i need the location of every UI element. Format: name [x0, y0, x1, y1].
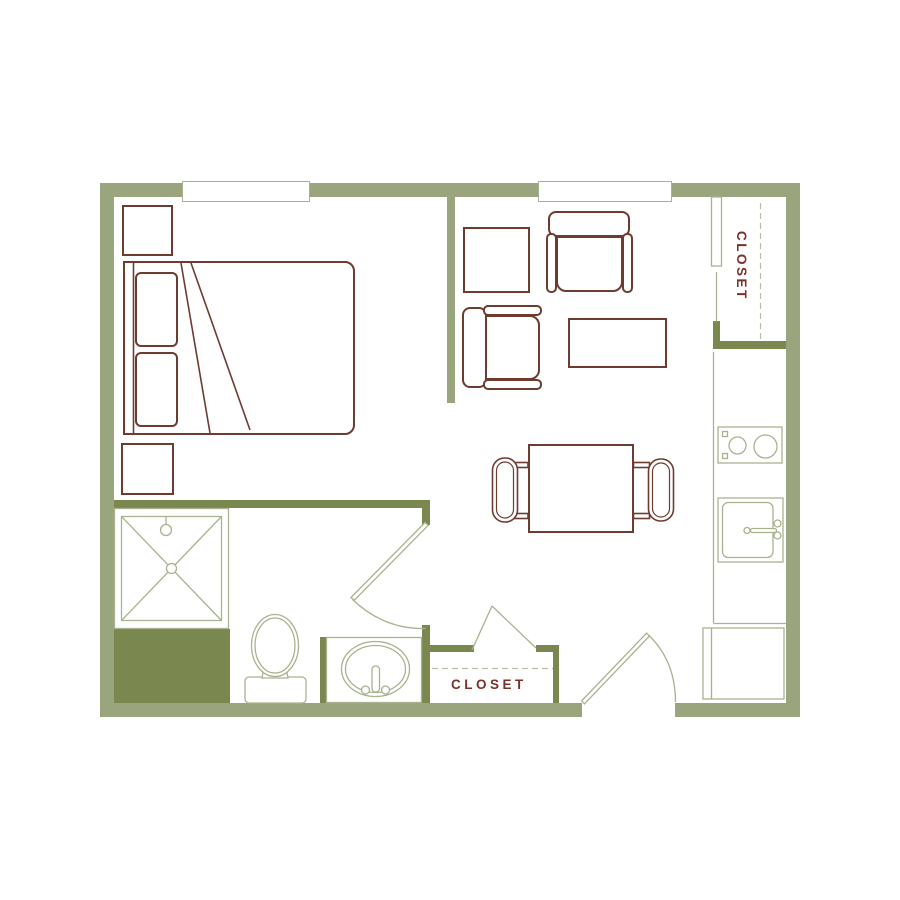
pillow-top	[135, 272, 178, 347]
armchair-facing-down-right-arm	[622, 233, 633, 293]
refrigerator	[703, 628, 784, 699]
side-table	[463, 227, 530, 293]
upper-closet-door	[712, 197, 722, 322]
armchair-facing-down-seat	[556, 236, 623, 292]
coffee-table	[568, 318, 667, 368]
bathroom-door	[351, 523, 428, 629]
wall-bedroom-bathroom	[114, 500, 430, 508]
closet-label-upper-right: CLOSET	[726, 231, 756, 319]
armchair-facing-right-back	[462, 307, 487, 388]
window-bedroom	[182, 181, 310, 202]
window-living-room	[538, 181, 672, 202]
armchair-facing-right-top-arm	[483, 305, 542, 316]
closet-label-lower: CLOSET	[451, 677, 527, 692]
nightstand-bottom	[121, 443, 174, 495]
wall-bathroom-door-stub	[422, 508, 430, 525]
wall-right	[786, 183, 800, 717]
dining-table	[528, 444, 634, 533]
entry-door	[582, 633, 676, 704]
toilet	[245, 615, 306, 704]
wall-bedroom-living-partition	[447, 197, 455, 403]
armchair-facing-right-bottom-arm	[483, 379, 542, 390]
armchair-facing-right-seat	[485, 315, 540, 380]
wall-bottom-right-segment	[675, 703, 800, 717]
bathroom-vanity-sink	[327, 638, 422, 703]
wall-upper-closet-bottom	[713, 341, 786, 349]
pillow-bottom	[135, 352, 178, 427]
armchair-facing-down-back	[548, 211, 630, 237]
wall-lower-closet-top-right	[536, 645, 559, 652]
bathroom-solid-block	[114, 629, 230, 703]
shower	[115, 509, 229, 629]
nightstand-top	[122, 205, 173, 256]
armchair-facing-down-left-arm	[546, 233, 557, 293]
wall-lower-closet-right	[553, 652, 559, 703]
wall-vanity-right	[422, 625, 430, 703]
kitchen-counter	[714, 352, 787, 624]
dining-chair-right	[634, 459, 674, 521]
wall-left	[100, 183, 114, 717]
wall-vanity-left	[320, 637, 326, 703]
floor-plan: CLOSET CLOSET	[0, 0, 900, 900]
lower-closet-bifold-door	[472, 606, 536, 650]
wall-lower-closet-top-left	[430, 645, 474, 652]
kitchen-sink	[718, 498, 783, 562]
wall-bottom-left-segment	[100, 703, 582, 717]
dining-chair-left	[493, 458, 529, 522]
stove	[718, 427, 782, 463]
